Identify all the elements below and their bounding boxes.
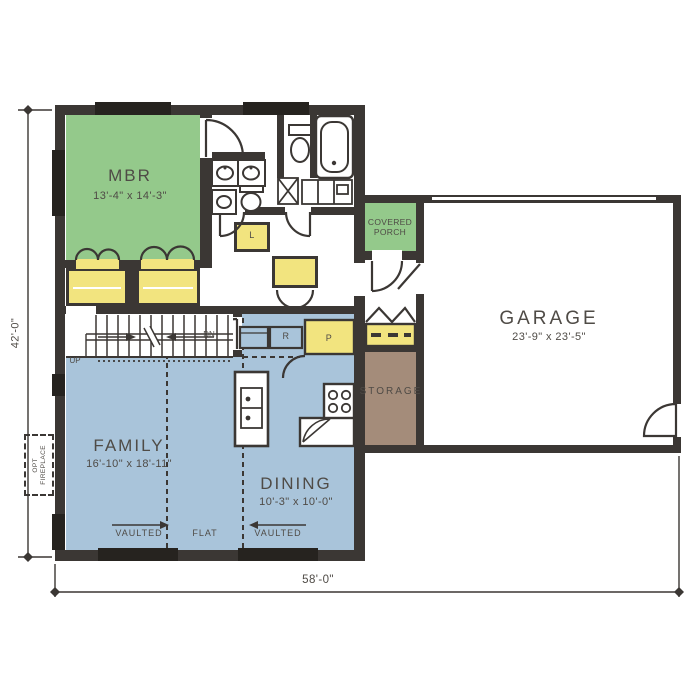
covered-porch-label: COVERED PORCH — [368, 218, 412, 238]
closet-door-openings — [76, 259, 194, 269]
family-label: FAMILY — [93, 436, 164, 456]
family-dims: 16'-10" x 18'-11" — [86, 458, 172, 471]
kitchen-cabinets — [240, 327, 302, 348]
pantry-label: P — [326, 333, 333, 343]
mbr-label: MBR — [108, 166, 152, 186]
stove-icon — [324, 384, 354, 420]
fixtures-layer — [0, 0, 700, 700]
ceiling-flat: FLAT — [192, 528, 217, 538]
garage-label: GARAGE — [499, 308, 598, 330]
linen-label: L — [249, 230, 255, 240]
entry-closet-shelf — [366, 324, 415, 346]
ceiling-vaulted-left: VAULTED — [115, 528, 162, 538]
overall-height-dimension: 42'-0" — [10, 318, 23, 348]
overall-width-dimension: 58'-0" — [302, 574, 334, 587]
bath-cabinet-icon — [302, 180, 352, 204]
floor-plan: OPT FIREPLACE — [0, 0, 700, 700]
kitchen-counter — [300, 418, 354, 446]
dining-dims: 10'-3" x 10'-0" — [259, 496, 333, 509]
covered-porch-line2: PORCH — [368, 228, 412, 238]
storage-label: STORAGE — [360, 386, 423, 398]
kitchen-island — [235, 372, 268, 446]
garage-door-swing — [644, 404, 676, 436]
bathtub-icon — [316, 116, 353, 178]
mbr-dims: 13'-4" x 14'-3" — [93, 190, 167, 203]
dining-label: DINING — [260, 474, 332, 494]
shower-icon — [278, 178, 298, 204]
stairs-up-label: UP — [69, 356, 80, 365]
garage-dims: 23'-9" x 23'-5" — [512, 331, 586, 344]
refrigerator-label: R — [283, 331, 290, 341]
ceiling-vaulted-right: VAULTED — [254, 528, 301, 538]
stairs-dn-label: DN — [203, 330, 215, 339]
door-openings — [200, 118, 682, 437]
